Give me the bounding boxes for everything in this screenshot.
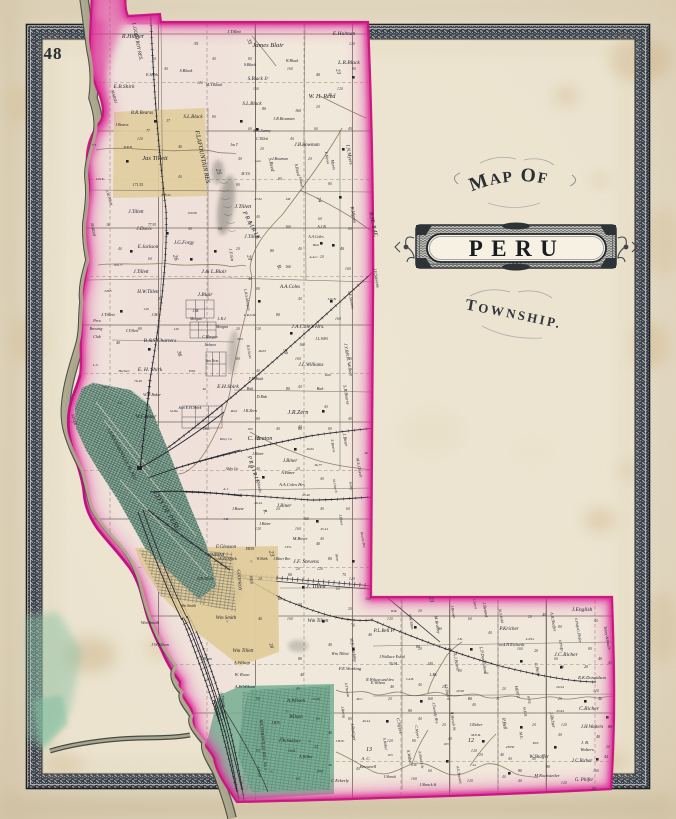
svg-text:L.Bk: L.Bk — [428, 673, 436, 677]
svg-text:40: 40 — [542, 613, 546, 617]
svg-text:L.Bk: L.Bk — [444, 647, 452, 651]
svg-text:P.L.Bell P.: P.L.Bell P. — [373, 629, 395, 634]
svg-text:W.F.Baker: W.F.Baker — [136, 415, 157, 420]
svg-text:A. C.: A. C. — [360, 756, 370, 761]
svg-text:C. Heaton: C. Heaton — [248, 436, 273, 442]
svg-text:R.K.Donaldson: R.K.Donaldson — [577, 675, 607, 680]
svg-text:120: 120 — [387, 738, 394, 743]
svg-text:80: 80 — [288, 573, 292, 577]
svg-text:46.77: 46.77 — [314, 463, 322, 467]
svg-text:80: 80 — [286, 387, 290, 391]
svg-text:J.W.T.: J.W.T. — [96, 177, 105, 181]
svg-text:A.A.Coles: A.A.Coles — [307, 235, 324, 239]
svg-text:77: 77 — [146, 129, 150, 133]
svg-text:7.5: 7.5 — [92, 143, 97, 147]
svg-text:40: 40 — [248, 277, 252, 281]
svg-text:W.R.Tillett: W.R.Tillett — [197, 577, 214, 581]
svg-text:26.94: 26.94 — [556, 685, 564, 689]
svg-text:40: 40 — [596, 735, 600, 739]
svg-text:120: 120 — [317, 566, 324, 571]
svg-text:H.W.Tillett: H.W.Tillett — [136, 290, 159, 295]
svg-text:J.W.Wilson: J.W.Wilson — [151, 642, 169, 647]
svg-text:120: 120 — [561, 722, 568, 727]
svg-text:160: 160 — [299, 343, 305, 347]
svg-text:16: 16 — [106, 223, 110, 227]
svg-text:76.40: 76.40 — [134, 379, 142, 383]
svg-text:(dis): (dis) — [317, 769, 324, 773]
svg-text:W. Roon: W. Roon — [234, 672, 250, 677]
svg-text:140: 140 — [173, 327, 179, 331]
svg-text:J.K.: J.K. — [457, 637, 463, 641]
svg-text:373.52: 373.52 — [161, 193, 171, 197]
svg-text:J.A.B.: J.A.B. — [406, 677, 414, 681]
svg-text:J.Tillett: J.Tillett — [235, 204, 252, 210]
svg-text:140: 140 — [143, 307, 149, 311]
svg-text:120: 120 — [255, 526, 262, 531]
svg-text:J.L.Williams: J.L.Williams — [298, 363, 323, 368]
svg-text:18: 18 — [328, 763, 332, 767]
svg-text:40: 40 — [316, 542, 320, 546]
svg-text:J.Boese: J.Boese — [232, 507, 244, 511]
svg-text:40: 40 — [178, 145, 182, 149]
svg-text:A.A.Coles Hrs: A.A.Coles Hrs — [278, 482, 305, 487]
svg-text:J.Tillett: J.Tillett — [133, 270, 149, 275]
svg-text:J.Tillett: J.Tillett — [101, 312, 115, 317]
svg-text:40: 40 — [256, 437, 260, 441]
svg-text:C.Tillett: C.Tillett — [256, 137, 269, 141]
svg-text:163: 163 — [387, 753, 393, 757]
svg-text:J.Davis: J.Davis — [136, 227, 151, 232]
svg-text:20: 20 — [534, 649, 538, 653]
svg-text:M.Rochstetler: M.Rochstetler — [533, 773, 560, 778]
svg-text:80: 80 — [546, 765, 550, 769]
svg-text:J.R.Zern: J.R.Zern — [243, 408, 257, 413]
svg-text:B.R.B.: B.R.B. — [123, 145, 132, 149]
svg-text:J.Tillett: J.Tillett — [128, 210, 144, 215]
svg-text:J.English: J.English — [572, 607, 593, 613]
svg-text:A.C.: A.C. — [102, 385, 109, 389]
svg-text:A.W.Wilson: A.W.Wilson — [234, 684, 256, 689]
svg-text:40: 40 — [340, 246, 344, 251]
svg-text:E. H. Shirk: E. H. Shirk — [137, 367, 163, 373]
svg-text:120: 120 — [387, 616, 394, 621]
svg-text:160: 160 — [253, 86, 260, 91]
svg-text:J. B.: J. B. — [581, 740, 589, 745]
svg-text:40: 40 — [364, 451, 368, 455]
svg-text:44: 44 — [472, 763, 476, 767]
svg-text:160: 160 — [365, 596, 372, 601]
svg-text:KANSAS: KANSAS — [207, 552, 225, 557]
svg-text:E.H.Shirk: E.H.Shirk — [216, 384, 239, 390]
svg-text:J.M.: J.M. — [193, 309, 200, 313]
svg-text:160: 160 — [335, 316, 342, 321]
svg-text:Wm Smith: Wm Smith — [216, 616, 237, 621]
svg-text:A.Wilson: A.Wilson — [286, 699, 305, 704]
svg-text:Son E.H.Shirk: Son E.H.Shirk — [179, 405, 202, 410]
svg-text:80: 80 — [608, 724, 612, 729]
svg-text:40: 40 — [300, 673, 304, 677]
svg-text:M.Y.Black: M.Y.Black — [205, 82, 223, 87]
svg-text:J.A.Cole's Hrs.: J.A.Cole's Hrs. — [291, 324, 324, 330]
svg-text:E.Shirk: E.Shirk — [145, 72, 158, 77]
svg-text:46.65: 46.65 — [258, 349, 266, 353]
svg-text:45.84: 45.84 — [556, 709, 564, 713]
svg-text:J.Richer: J.Richer — [470, 723, 483, 727]
svg-text:40.62: 40.62 — [306, 447, 314, 451]
svg-text:Brewing: Brewing — [90, 327, 103, 331]
svg-text:S.L.Black: S.L.Black — [242, 102, 262, 107]
svg-text:12: 12 — [468, 738, 474, 744]
svg-text:40.44: 40.44 — [362, 719, 370, 723]
svg-text:120: 120 — [349, 41, 356, 46]
svg-text:Jos T: Jos T — [230, 143, 239, 147]
svg-text:Grd.: Grd. — [288, 748, 295, 753]
svg-text:80: 80 — [262, 107, 266, 111]
svg-text:J.Wallace Est al: J.Wallace Est al — [379, 654, 406, 659]
svg-text:A.J.: A.J. — [222, 487, 229, 491]
svg-text:Wm Tillett: Wm Tillett — [233, 649, 254, 654]
svg-text:160: 160 — [427, 697, 433, 701]
svg-text:F.E.Working: F.E.Working — [338, 666, 362, 671]
svg-text:23: 23 — [314, 745, 318, 749]
svg-text:W.Shirk: W.Shirk — [256, 557, 268, 561]
svg-text:23.46: 23.46 — [302, 493, 310, 497]
svg-text:A.Thom: A.Thom — [199, 657, 212, 661]
svg-text:J.G.Forgy: J.G.Forgy — [174, 241, 195, 246]
svg-text:J.C.: J.C. — [117, 401, 123, 405]
svg-text:109.98: 109.98 — [187, 211, 197, 215]
svg-text:40: 40 — [500, 753, 504, 757]
svg-text:J.H.Walters: J.H.Walters — [581, 725, 604, 730]
svg-text:120: 120 — [137, 136, 144, 141]
svg-text:M.E.R.: M.E.R. — [470, 733, 481, 737]
svg-text:C.Richer: C.Richer — [579, 706, 600, 712]
svg-text:Brownell: Brownell — [360, 764, 377, 769]
svg-text:L.R.S.M.: L.R.S.M. — [243, 313, 256, 317]
svg-text:J.Bearss: J.Bearss — [116, 123, 129, 127]
svg-text:120: 120 — [561, 780, 568, 785]
svg-text:40: 40 — [328, 93, 332, 97]
svg-text:James Blair: James Blair — [252, 42, 284, 49]
svg-text:160: 160 — [345, 266, 352, 271]
svg-text:Bish: Bish — [317, 387, 324, 391]
svg-text:S.Black Jr: S.Black Jr — [248, 77, 269, 82]
svg-text:Club: Club — [93, 335, 100, 339]
svg-text:60: 60 — [278, 597, 282, 601]
svg-text:E.Jackson: E.Jackson — [137, 245, 159, 250]
svg-text:J.B.W.: J.B.W. — [271, 721, 281, 725]
svg-text:L.C.: L.C. — [92, 363, 99, 367]
svg-text:J. Tillett: J. Tillett — [306, 584, 326, 590]
svg-text:St.Sta: St.Sta — [170, 409, 178, 413]
svg-text:160: 160 — [295, 356, 302, 361]
svg-text:I.Tillett: I.Tillett — [125, 328, 139, 333]
svg-text:26.98: 26.98 — [456, 689, 464, 693]
svg-text:E.Hulman: E.Hulman — [332, 31, 356, 37]
svg-text:40: 40 — [316, 72, 320, 77]
svg-text:S.K.B.: S.K.B. — [328, 297, 337, 301]
svg-text:A.Wilbur: A.Wilbur — [298, 755, 313, 759]
svg-text:76.94: 76.94 — [389, 662, 398, 666]
svg-text:80: 80 — [276, 313, 280, 317]
svg-text:J.H.W.: J.H.W. — [335, 739, 345, 743]
svg-text:W. H. Reed: W. H. Reed — [309, 94, 337, 100]
svg-text:Tilth: Tilth — [189, 369, 196, 373]
svg-text:C.Marquis: C.Marquis — [202, 335, 218, 339]
svg-text:Abby Go: Abby Go — [225, 467, 239, 471]
svg-text:171.55: 171.55 — [133, 183, 144, 187]
svg-text:160: 160 — [517, 646, 524, 651]
svg-text:F.Gleason: F.Gleason — [215, 545, 237, 550]
svg-text:46: 46 — [450, 711, 454, 715]
svg-text:45.44: 45.44 — [320, 527, 328, 531]
svg-text:75: 75 — [342, 573, 346, 577]
svg-text:J.Biner: J.Biner — [252, 451, 264, 456]
svg-text:J.C.Richer: J.C.Richer — [572, 759, 593, 764]
svg-text:44: 44 — [604, 755, 608, 759]
svg-text:J.Biner: J.Biner — [283, 459, 298, 464]
svg-text:20: 20 — [560, 665, 564, 669]
svg-text:A.: A. — [495, 697, 499, 701]
svg-text:40: 40 — [258, 617, 262, 621]
svg-text:Wilson: Wilson — [289, 715, 303, 720]
svg-text:Wm Smith: Wm Smith — [141, 620, 160, 625]
svg-text:J.B.: J.B. — [223, 517, 229, 521]
svg-text:120: 120 — [467, 778, 474, 783]
svg-text:W.M.Baker: W.M.Baker — [143, 392, 161, 397]
svg-text:Geo: Geo — [255, 159, 261, 163]
svg-text:120: 120 — [593, 688, 600, 693]
svg-text:Wm Tillett: Wm Tillett — [331, 651, 349, 656]
svg-text:A.J.B.: A.J.B. — [316, 225, 326, 229]
svg-text:J.Tillett: J.Tillett — [227, 29, 241, 34]
svg-text:Thos: Thos — [203, 427, 211, 431]
svg-text:Wm Tillett: Wm Tillett — [308, 619, 329, 624]
svg-text:46: 46 — [202, 387, 206, 391]
svg-text:Riley Co: Riley Co — [219, 437, 232, 441]
svg-text:Peru: Peru — [92, 319, 100, 323]
svg-text:Morgan: Morgan — [189, 317, 202, 321]
svg-text:S.Black: S.Black — [244, 62, 256, 67]
svg-text:J.B.F.: J.B.F. — [104, 289, 112, 293]
svg-text:A.Wilson: A.Wilson — [233, 660, 251, 665]
svg-text:J.M.: J.M. — [152, 313, 159, 317]
svg-text:C.Eckerly: C.Eckerly — [331, 778, 349, 783]
svg-text:M.Biner: M.Biner — [292, 536, 308, 541]
svg-text:W.Black: W.Black — [286, 59, 299, 63]
svg-text:47.62: 47.62 — [254, 197, 262, 201]
svg-text:46.44: 46.44 — [254, 501, 262, 505]
svg-text:J.F.S.: J.F.S. — [284, 545, 292, 549]
svg-text:M.E.: M.E. — [532, 741, 540, 745]
svg-text:M.C.: M.C. — [356, 697, 364, 701]
svg-text:L.R.J.: L.R.J. — [217, 317, 227, 321]
svg-text:100.77: 100.77 — [113, 263, 123, 267]
svg-text:RES: RES — [249, 575, 255, 585]
svg-text:J.R.Bowman: J.R.Bowman — [273, 116, 294, 121]
svg-text:140: 140 — [427, 662, 433, 666]
svg-text:Herbert: Herbert — [117, 369, 130, 373]
svg-text:160: 160 — [287, 616, 294, 621]
svg-text:I.Shrock: I.Shrock — [383, 775, 396, 779]
svg-text:B.R.Bearss: B.R.Bearss — [131, 111, 153, 116]
svg-text:77.93: 77.93 — [148, 223, 156, 227]
svg-text:J.F. Stevens: J.F. Stevens — [293, 559, 319, 565]
svg-text:R.Wilson and bro: R.Wilson and bro — [365, 677, 394, 682]
svg-text:ERNS: ERNS — [245, 547, 255, 551]
svg-text:Morgan: Morgan — [215, 325, 228, 329]
svg-text:Kith: Kith — [324, 373, 331, 377]
svg-text:40: 40 — [328, 643, 332, 647]
svg-text:43656: 43656 — [506, 745, 515, 749]
svg-text:120: 120 — [337, 86, 344, 91]
svg-text:XXX: XXX — [236, 337, 244, 341]
svg-text:35: 35 — [194, 41, 199, 46]
svg-text:80.9: 80.9 — [499, 643, 505, 647]
svg-text:40: 40 — [598, 657, 602, 661]
svg-text:48: 48 — [44, 44, 63, 63]
svg-text:L.P.D.: L.P.D. — [525, 637, 535, 641]
svg-text:160: 160 — [295, 109, 301, 113]
svg-text:Bish: Bish — [313, 243, 319, 247]
svg-text:40: 40 — [368, 633, 372, 637]
svg-text:W.R.: W.R. — [391, 609, 398, 613]
svg-text:A.A.Coles: A.A.Coles — [279, 285, 300, 290]
svg-text:J.Shrock St: J.Shrock St — [420, 783, 438, 787]
svg-text:T.M.Rush: T.M.Rush — [249, 377, 264, 381]
svg-text:A.A.C.: A.A.C. — [308, 255, 318, 259]
svg-text:Jackson: Jackson — [204, 343, 216, 347]
svg-text:M.Y.S.: M.Y.S. — [240, 172, 250, 176]
svg-text:80: 80 — [298, 603, 302, 607]
svg-text:J.& L.Blair: J.& L.Blair — [201, 269, 227, 275]
svg-text:120: 120 — [255, 326, 262, 331]
svg-text:Van Ness: Van Ness — [205, 359, 219, 363]
svg-text:160: 160 — [287, 66, 294, 71]
svg-text:46: 46 — [598, 697, 602, 701]
svg-text:80: 80 — [298, 657, 302, 661]
svg-text:160: 160 — [411, 776, 418, 781]
svg-text:D.Bish: D.Bish — [256, 395, 268, 399]
svg-text:120: 120 — [197, 80, 204, 85]
svg-text:40: 40 — [328, 731, 332, 735]
svg-text:J.Bowman: J.Bowman — [272, 157, 288, 161]
svg-text:20: 20 — [584, 665, 588, 669]
svg-text:120: 120 — [349, 576, 356, 581]
svg-text:40: 40 — [390, 685, 394, 689]
svg-text:A.Biner: A.Biner — [280, 470, 295, 475]
svg-text:S.Black: S.Black — [180, 68, 193, 73]
svg-text:J.R.Zern: J.R.Zern — [288, 410, 309, 416]
svg-text:160: 160 — [593, 768, 600, 773]
svg-text:120: 120 — [477, 752, 484, 757]
svg-text:J.Biner Bro: J.Biner Bro — [274, 557, 291, 561]
svg-text:L.R.Black: L.R.Black — [337, 60, 360, 66]
svg-text:75.46: 75.46 — [312, 697, 320, 701]
svg-text:Bish: Bish — [247, 387, 254, 391]
svg-text:S.W.: S.W. — [411, 763, 418, 767]
svg-text:Walters: Walters — [580, 747, 594, 752]
svg-text:163: 163 — [443, 742, 449, 746]
svg-text:Jun: Jun — [484, 671, 489, 675]
svg-text:S.L.Black: S.L.Black — [183, 115, 203, 120]
svg-text:163: 163 — [247, 427, 253, 431]
svg-text:80: 80 — [408, 709, 412, 713]
svg-text:80: 80 — [270, 249, 274, 253]
svg-text:P.Kricher: P.Kricher — [498, 627, 518, 632]
svg-text:J.Blair: J.Blair — [197, 292, 213, 298]
svg-text:PERU: PERU — [469, 236, 566, 261]
svg-text:Wm Smith: Wm Smith — [180, 604, 196, 608]
svg-text:80: 80 — [328, 557, 332, 561]
svg-text:G. Phifer: G. Phifer — [575, 778, 594, 783]
svg-text:160: 160 — [303, 517, 309, 521]
svg-text:Rich: Rich — [230, 409, 238, 413]
svg-text:160: 160 — [285, 265, 291, 269]
svg-text:M.C.Surrey: M.C.Surrey — [252, 129, 271, 133]
svg-text:J.B.Bowman: J.B.Bowman — [294, 143, 320, 148]
svg-text:B.&S.Charters: B.&S.Charters — [144, 338, 177, 344]
svg-text:13: 13 — [366, 747, 372, 753]
svg-text:40: 40 — [116, 341, 120, 345]
svg-text:Jas Tillett: Jas Tillett — [142, 155, 168, 162]
svg-text:80: 80 — [518, 769, 522, 773]
svg-text:160: 160 — [295, 526, 302, 531]
svg-text:160: 160 — [285, 225, 291, 229]
